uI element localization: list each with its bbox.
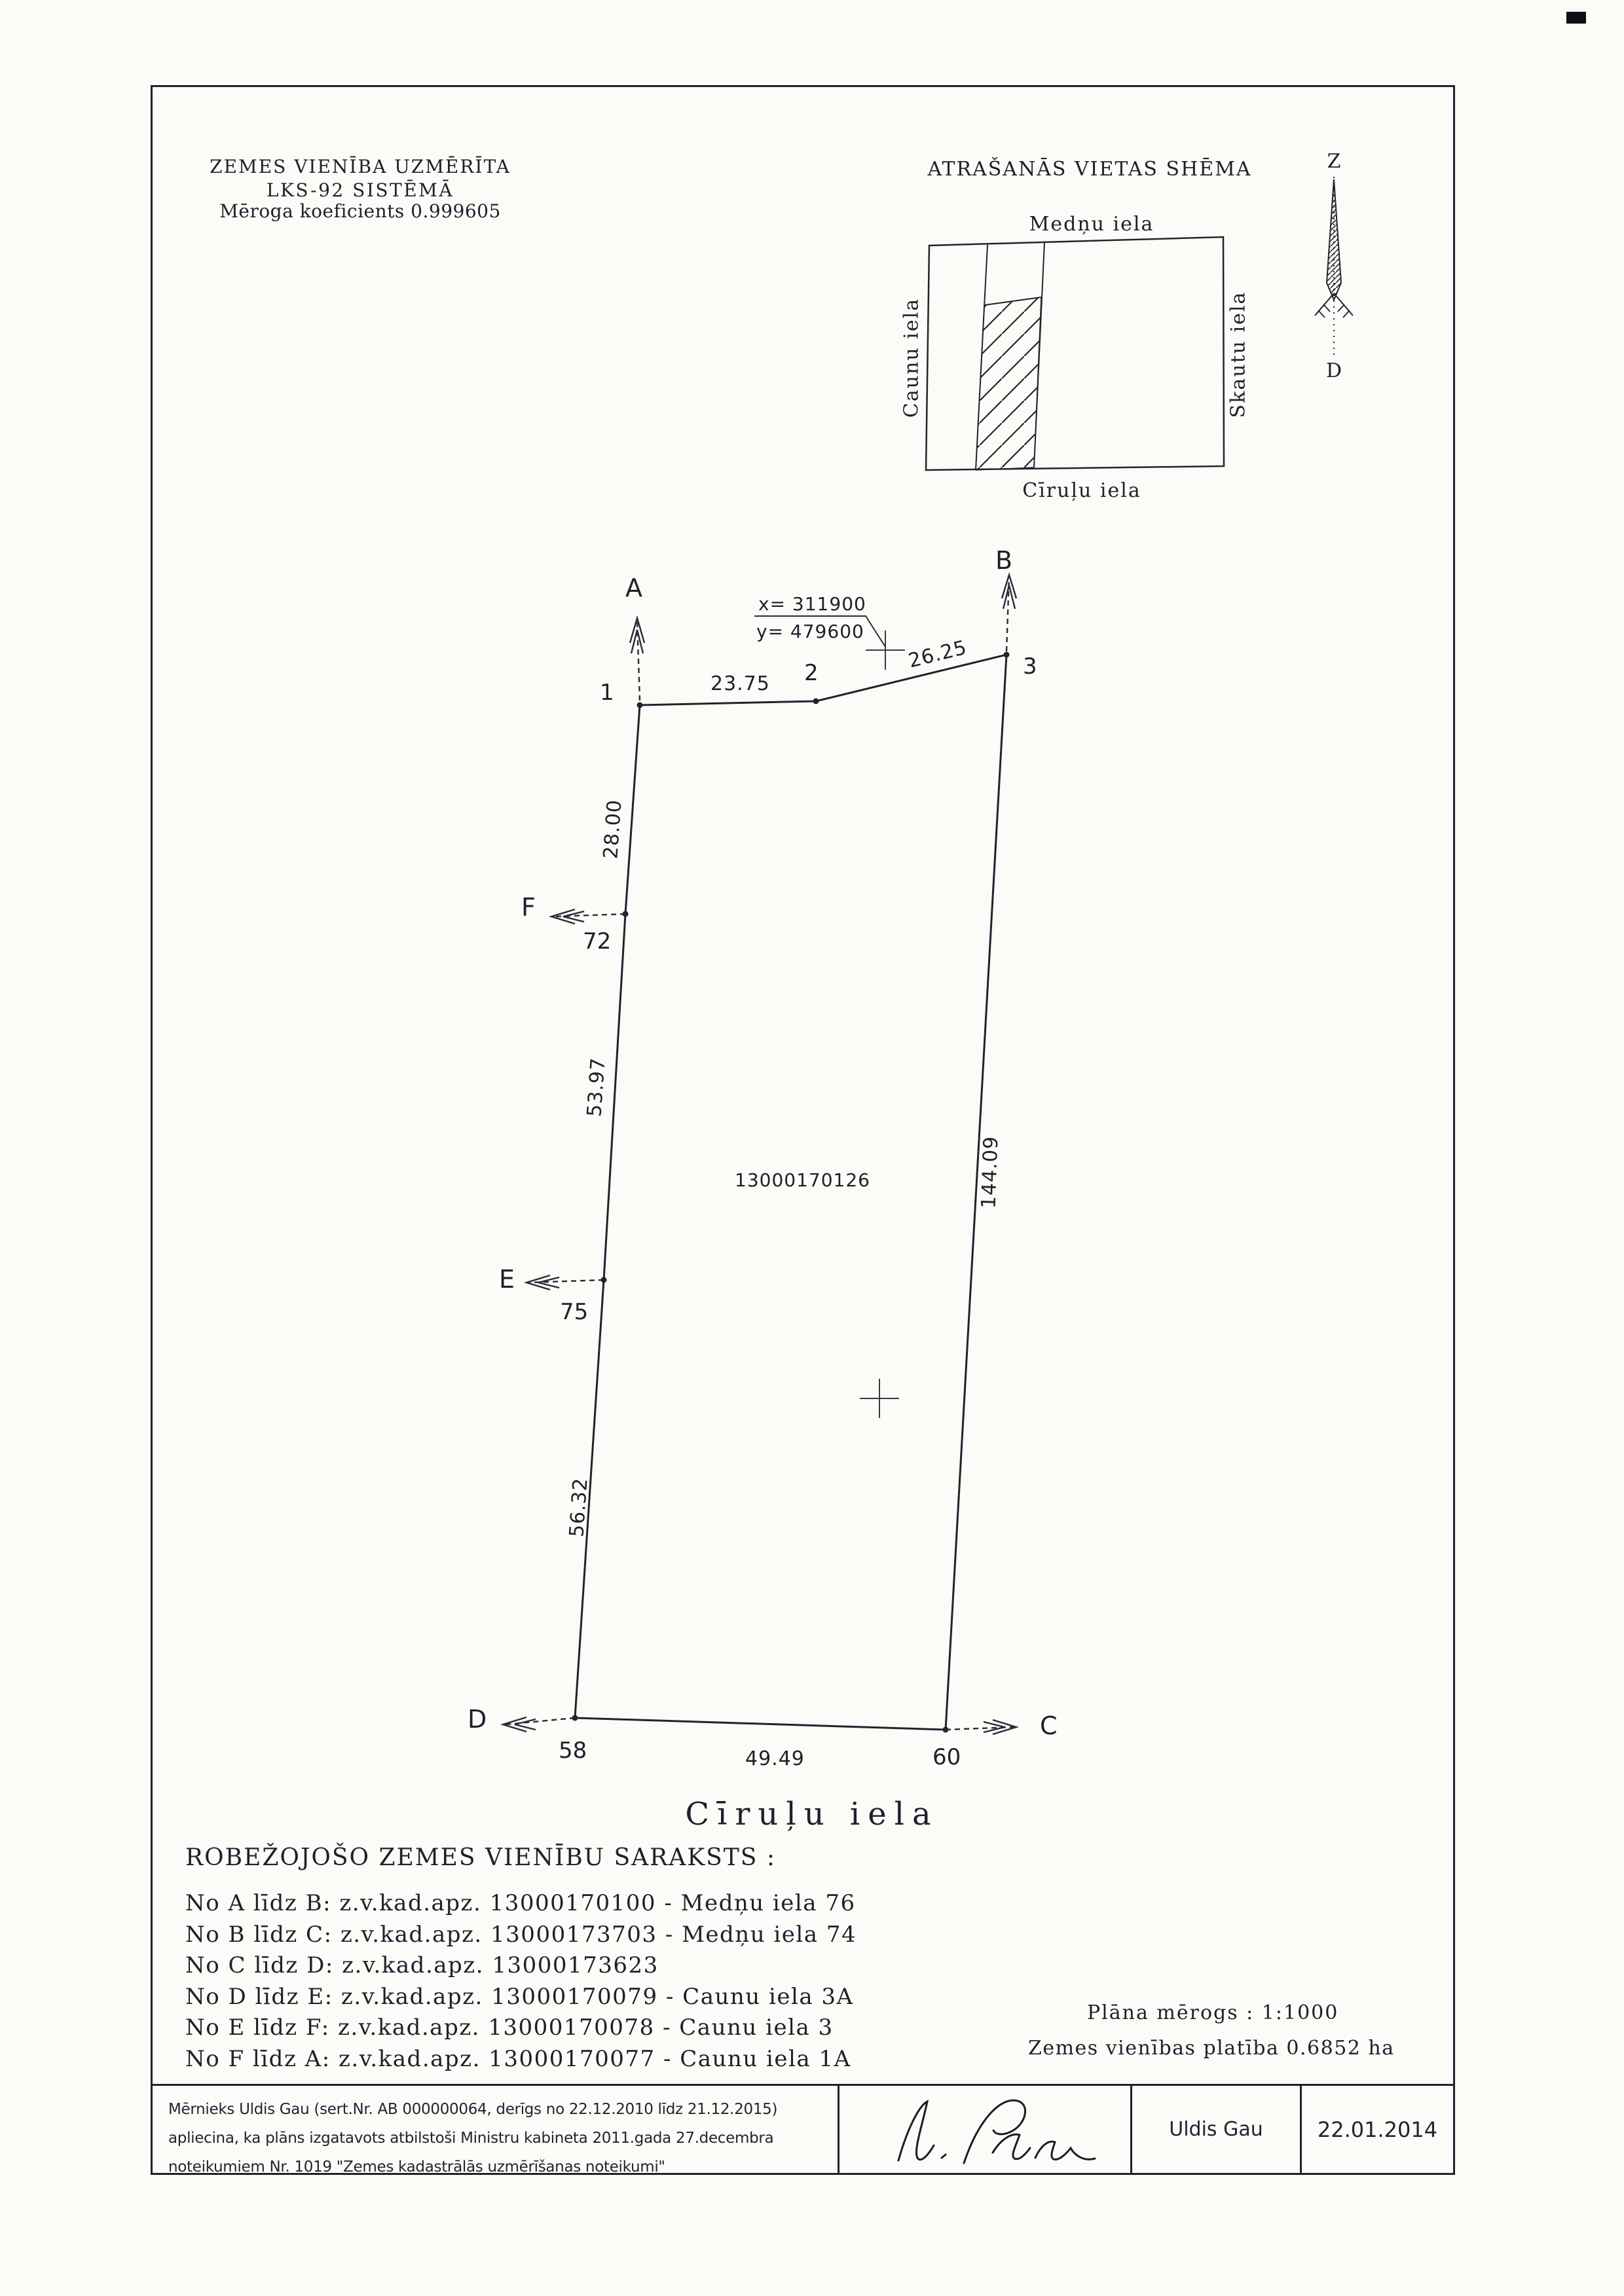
street-title-cirulu: Cīruļu iela xyxy=(655,1797,969,1832)
direction-label-e: E xyxy=(499,1266,515,1294)
direction-label-a: A xyxy=(625,575,642,602)
dimension-3-60-label: 144.09 xyxy=(978,1133,1002,1212)
certification-cell: Mērnieks Uldis Gau (sert.Nr. AB 00000006… xyxy=(153,2086,840,2173)
vertex-label-60: 60 xyxy=(932,1745,961,1770)
street-label-mednu: Medņu iela xyxy=(993,213,1190,235)
street-label-skautu: Skautu iela xyxy=(1228,257,1249,453)
surveyor-name-cell: Uldis Gau xyxy=(1132,2086,1302,2173)
border-list-item: No D līdz E: z.v.kad.apz. 13000170079 - … xyxy=(185,1982,857,2013)
survey-plan-page: ZEMES VIENĪBA UZMĒRĪTA LKS-92 SISTĒMĀ Mē… xyxy=(0,0,1624,2296)
vertex-label-75: 75 xyxy=(560,1300,588,1324)
direction-label-d: D xyxy=(468,1706,487,1734)
dimension-72-75-label: 53.97 xyxy=(583,1050,610,1123)
compass-south-label: D xyxy=(1321,360,1347,382)
street-label-cirulu-scheme: Cīruļu iela xyxy=(984,480,1180,501)
direction-label-c: C xyxy=(1040,1713,1058,1740)
border-list-item: No B līdz C: z.v.kad.apz. 13000173703 - … xyxy=(185,1920,857,1951)
vertex-label-3: 3 xyxy=(1023,655,1037,679)
header-line-2: LKS-92 SISTĒMĀ xyxy=(196,181,524,201)
scan-corner-mark xyxy=(1566,12,1586,24)
street-label-caunu: Caunu iela xyxy=(901,260,923,456)
certification-line-2: apliecina, ka plāns izgatavots atbilstoš… xyxy=(168,2124,822,2153)
direction-label-f: F xyxy=(521,894,536,922)
border-list-title: ROBEŽOJOŠO ZEMES VIENĪBU SARAKSTS : xyxy=(185,1845,776,1871)
header-line-1: ZEMES VIENĪBA UZMĒRĪTA xyxy=(196,157,524,177)
border-list: No A līdz B: z.v.kad.apz. 13000170100 - … xyxy=(185,1888,857,2075)
border-list-item: No E līdz F: z.v.kad.apz. 13000170078 - … xyxy=(185,2013,857,2044)
border-list-item: No F līdz A: z.v.kad.apz. 13000170077 - … xyxy=(185,2044,857,2075)
vertex-label-72: 72 xyxy=(583,930,611,954)
certification-line-3: noteikumiem Nr. 1019 "Zemes kadastrālās … xyxy=(168,2153,822,2181)
signature-block: Mērnieks Uldis Gau (sert.Nr. AB 00000006… xyxy=(151,2084,1455,2175)
vertex-label-1: 1 xyxy=(600,681,614,705)
scale-label: Plāna mērogs : 1:1000 xyxy=(1087,2002,1338,2024)
signature-cell xyxy=(840,2086,1132,2173)
dimension-1-72-label: 28.00 xyxy=(600,792,627,866)
coordinate-y-label: y= 479600 xyxy=(756,622,864,642)
survey-date: 22.01.2014 xyxy=(1318,2117,1437,2142)
dimension-75-58-label: 56.32 xyxy=(566,1470,593,1544)
border-list-item: No C līdz D: z.v.kad.apz. 13000173623 xyxy=(185,1950,857,1982)
dimension-58-60-label: 49.49 xyxy=(745,1748,805,1770)
scheme-title: ATRAŠANĀS VIETAS SHĒMA xyxy=(919,158,1260,180)
dimension-1-2-label: 23.75 xyxy=(710,673,770,695)
vertex-label-58: 58 xyxy=(559,1739,587,1763)
survey-date-cell: 22.01.2014 xyxy=(1302,2086,1453,2173)
border-list-item: No A līdz B: z.v.kad.apz. 13000170100 - … xyxy=(185,1888,857,1920)
compass-north-label: Z xyxy=(1321,151,1347,172)
vertex-label-2: 2 xyxy=(804,661,819,685)
header-line-3: Mēroga koeficients 0.999605 xyxy=(190,202,530,222)
area-label: Zemes vienības platība 0.6852 ha xyxy=(1028,2037,1395,2059)
direction-label-b: B xyxy=(995,547,1012,575)
surveyor-name: Uldis Gau xyxy=(1169,2118,1263,2141)
coordinate-x-label: x= 311900 xyxy=(758,594,866,615)
parcel-number: 13000170126 xyxy=(735,1171,870,1191)
certification-line-1: Mērnieks Uldis Gau (sert.Nr. AB 00000006… xyxy=(168,2095,822,2124)
